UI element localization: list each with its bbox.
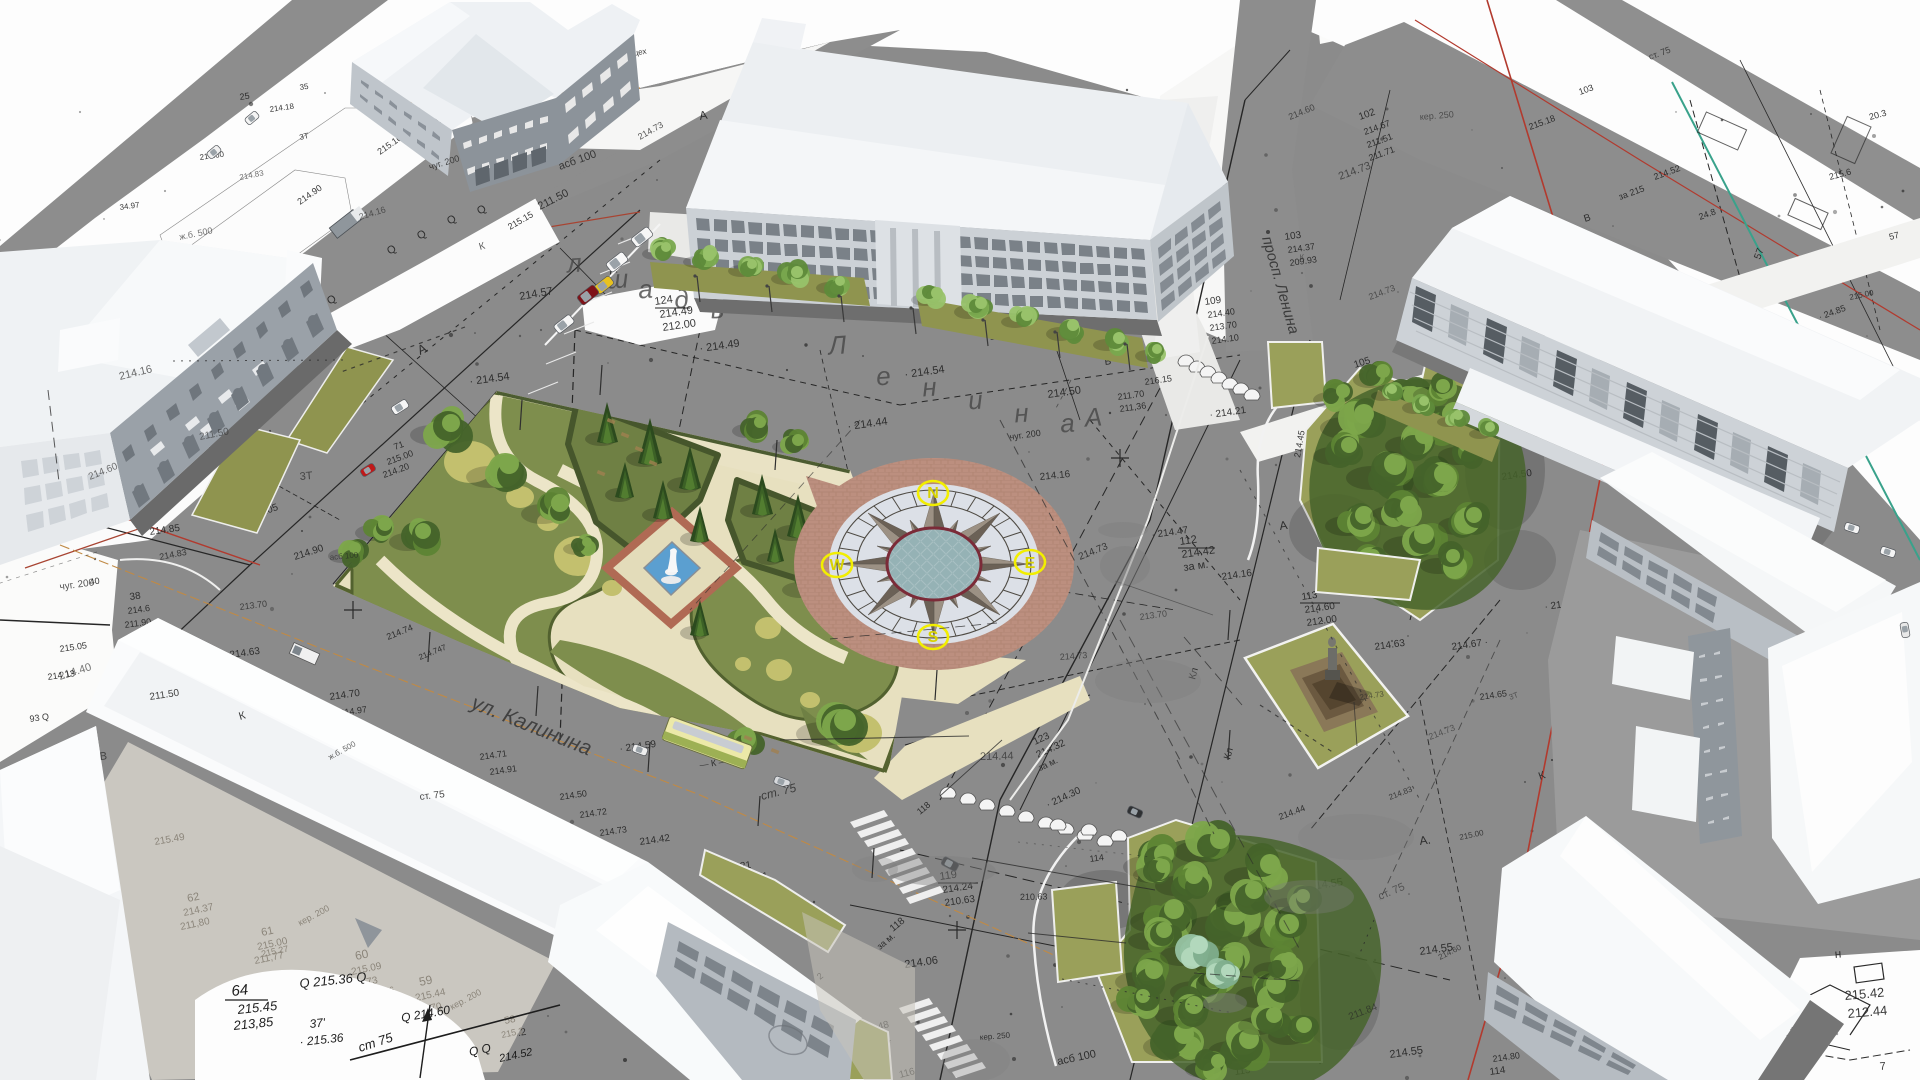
svg-text:214.73: 214.73 [1059,650,1087,662]
svg-text:38: 38 [129,590,142,603]
svg-text:35: 35 [299,82,310,92]
svg-text:E: E [1025,555,1036,572]
svg-text:N: N [927,485,939,502]
svg-text:62: 62 [186,891,200,905]
svg-text:Л: Л [825,329,847,360]
svg-text:е: е [875,361,892,392]
svg-text:н: н [1013,398,1029,429]
svg-text:W: W [829,557,845,574]
svg-text:А.: А. [1418,833,1431,848]
svg-text:В: В [99,750,107,763]
svg-text:А: А [1082,401,1103,432]
svg-text:25: 25 [239,91,250,102]
svg-text:7: 7 [1879,1061,1886,1073]
svg-text:210.63: 210.63 [1020,891,1048,902]
svg-text:и: и [967,385,984,416]
svg-text:214.44: 214.44 [980,750,1014,763]
svg-text:л: л [564,248,583,279]
svg-text:114: 114 [1089,852,1105,864]
svg-text:61: 61 [260,925,274,939]
svg-text:37': 37' [309,1015,327,1031]
svg-text:а: а [1059,408,1076,439]
svg-text:а: а [637,274,654,305]
svg-text:3Т: 3Т [299,470,313,483]
svg-text:124: 124 [654,294,674,308]
svg-text:н: н [1834,946,1842,961]
svg-text:64: 64 [231,981,249,1000]
svg-text:S: S [928,629,939,646]
svg-text:114: 114 [1489,1065,1507,1078]
